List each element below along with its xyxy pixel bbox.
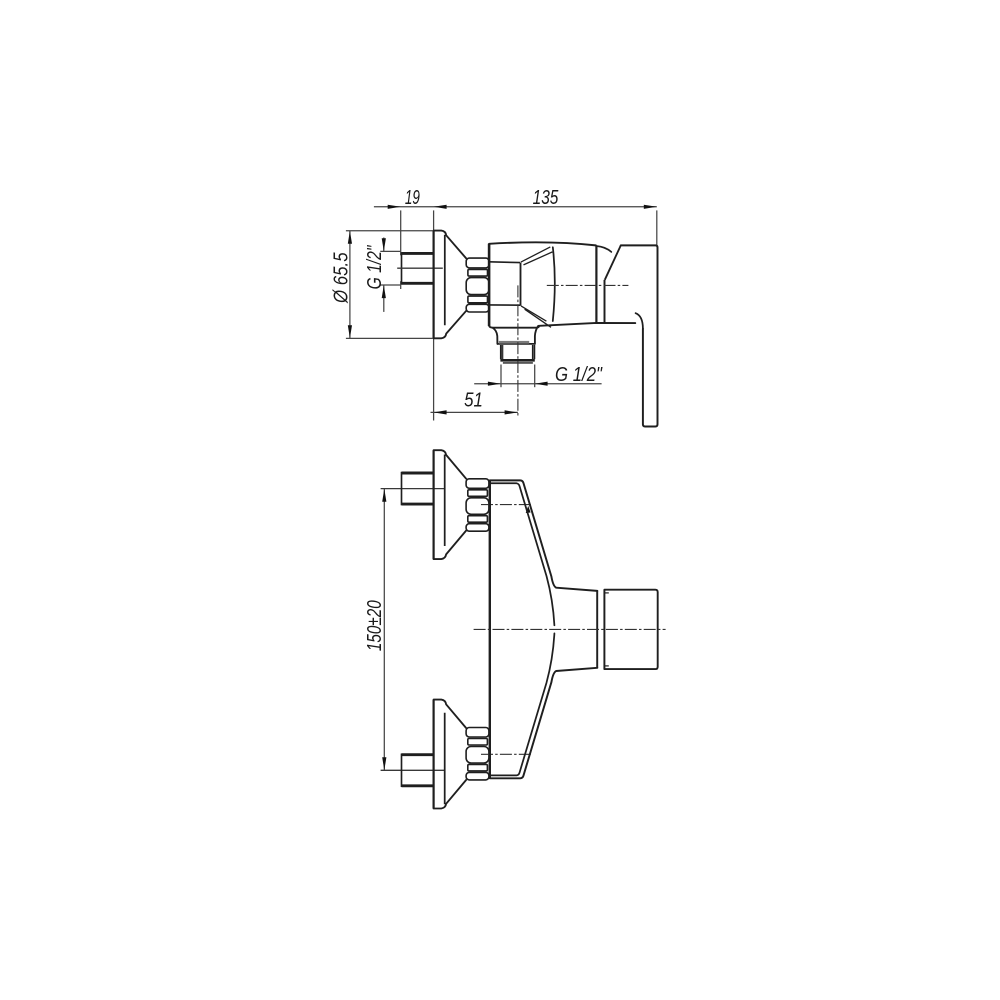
svg-text:G 1/2": G 1/2" [364,245,386,289]
svg-text:150±20: 150±20 [364,600,386,651]
svg-text:135: 135 [533,187,559,209]
svg-text:19: 19 [405,187,420,209]
svg-text:51: 51 [464,390,483,412]
svg-text:G 1/2": G 1/2" [555,364,603,386]
svg-text:Ø 65.5: Ø 65.5 [331,252,353,304]
